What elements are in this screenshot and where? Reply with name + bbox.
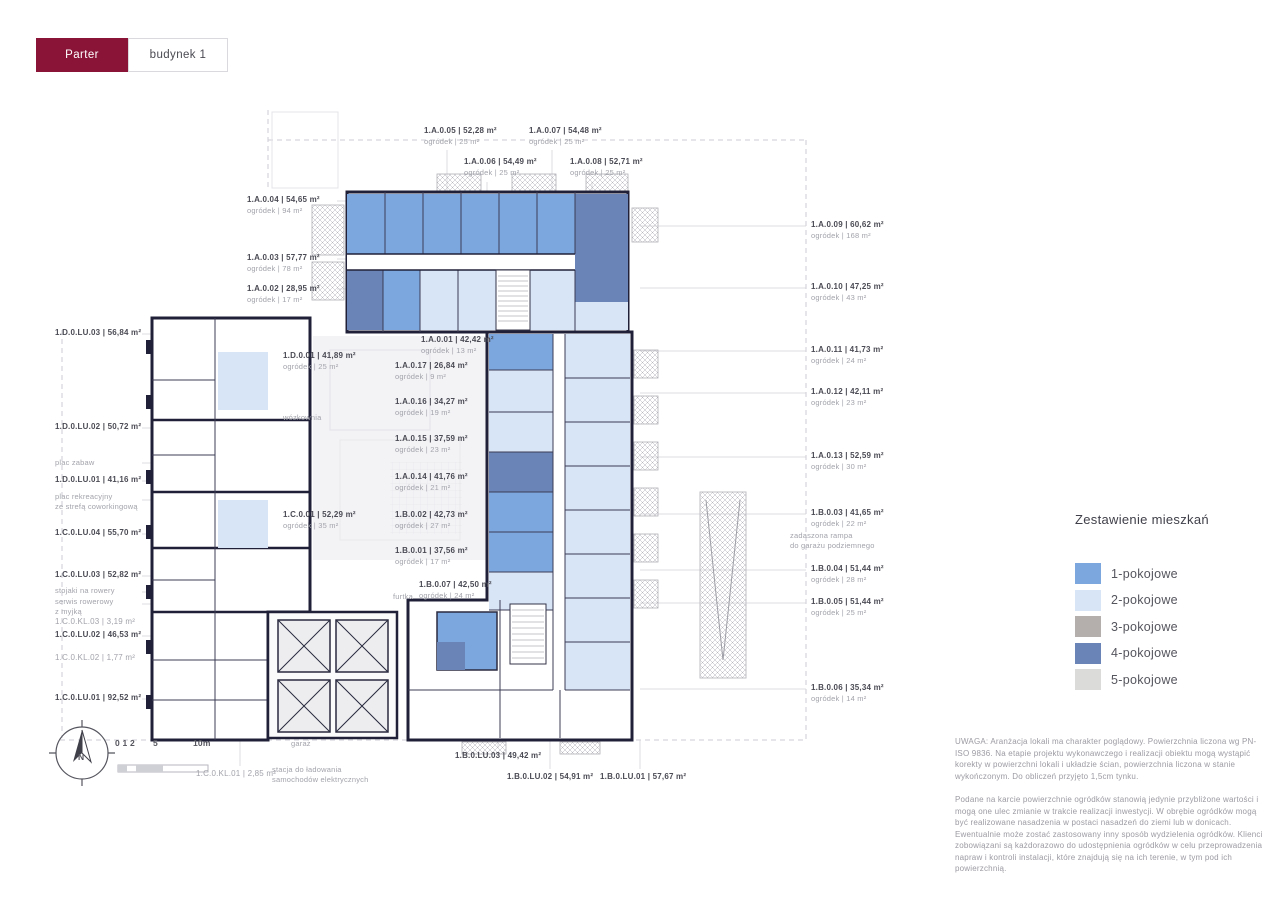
unit-label: 1.B.0.05 | 51,44 m²ogródek | 25 m² <box>811 596 884 618</box>
legend-item: 3-pokojowe <box>1075 616 1255 637</box>
apartment-legend: Zestawienie mieszkań 1-pokojowe2-pokojow… <box>1075 512 1255 696</box>
legend-color-swatch <box>1075 643 1101 664</box>
unit-label: 1.C.0.KL.02 | 1,77 m² <box>55 652 135 663</box>
legend-item: 2-pokojowe <box>1075 590 1255 611</box>
legend-color-swatch <box>1075 669 1101 690</box>
legend-title: Zestawienie mieszkań <box>1075 512 1255 527</box>
legend-item-label: 4-pokojowe <box>1111 646 1178 660</box>
unit-label: 1.A.0.13 | 52,59 m²ogródek | 30 m² <box>811 450 884 472</box>
unit-label: 1.A.0.10 | 47,25 m²ogródek | 43 m² <box>811 281 884 303</box>
unit-label: 1.C.0.LU.01 | 92,52 m² <box>55 692 141 703</box>
unit-label: 1.C.0.01 | 52,29 m²ogródek | 35 m² <box>283 509 356 531</box>
unit-label: 1.C.0.KL.03 | 3,19 m² <box>55 616 135 627</box>
legend-item-label: 2-pokojowe <box>1111 593 1178 607</box>
unit-label: 1.A.0.12 | 42,11 m²ogródek | 23 m² <box>811 386 883 408</box>
unit-label: 1.A.0.02 | 28,95 m²ogródek | 17 m² <box>247 283 320 305</box>
legend-items: 1-pokojowe2-pokojowe3-pokojowe4-pokojowe… <box>1075 563 1255 690</box>
legend-item: 5-pokojowe <box>1075 669 1255 690</box>
unit-label: 1.B.0.LU.01 | 57,67 m² <box>600 771 686 782</box>
legend-color-swatch <box>1075 590 1101 611</box>
tab-parter[interactable]: Parter <box>36 38 128 72</box>
unit-label: 1.A.0.07 | 54,48 m²ogródek | 25 m² <box>529 125 602 147</box>
plan-text-label: 5 <box>153 738 158 748</box>
legend-item: 1-pokojowe <box>1075 563 1255 584</box>
legend-item-label: 3-pokojowe <box>1111 620 1178 634</box>
unit-label: 1.D.0.01 | 41,89 m²ogródek | 25 m² <box>283 350 356 372</box>
legend-item: 4-pokojowe <box>1075 643 1255 664</box>
unit-label: 1.A.0.11 | 41,73 m²ogródek | 24 m² <box>811 344 883 366</box>
plan-text-label: 10m <box>193 738 211 748</box>
plan-text-label: wózkownia <box>283 413 321 423</box>
unit-label: 1.D.0.LU.03 | 56,84 m² <box>55 327 141 338</box>
unit-label: 1.A.0.08 | 52,71 m²ogródek | 25 m² <box>570 156 643 178</box>
unit-label: 1.A.0.17 | 26,84 m²ogródek | 9 m² <box>395 360 468 382</box>
tab-budynek-1[interactable]: budynek 1 <box>128 38 228 72</box>
unit-label: 1.C.0.LU.04 | 55,70 m² <box>55 527 141 538</box>
plan-text-label: stojaki na rowery <box>55 586 115 596</box>
unit-label: 1.A.0.06 | 54,49 m²ogródek | 25 m² <box>464 156 537 178</box>
plan-text-label: plac zabaw <box>55 458 95 468</box>
unit-label: 1.B.0.04 | 51,44 m²ogródek | 28 m² <box>811 563 884 585</box>
unit-label: 1.A.0.03 | 57,77 m²ogródek | 78 m² <box>247 252 320 274</box>
unit-label: 1.A.0.16 | 34,27 m²ogródek | 19 m² <box>395 396 468 418</box>
unit-label: 1.A.0.14 | 41,76 m²ogródek | 21 m² <box>395 471 468 493</box>
plan-text-label: zadaszona rampa do garażu podziemnego <box>790 531 875 551</box>
unit-label: 1.B.0.02 | 42,73 m²ogródek | 27 m² <box>395 509 468 531</box>
unit-label: 1.C.0.LU.03 | 52,82 m² <box>55 569 141 580</box>
plan-text-label: garaż <box>291 739 311 749</box>
unit-label: 1.B.0.LU.03 | 49,42 m² <box>455 750 541 761</box>
legend-item-label: 1-pokojowe <box>1111 567 1178 581</box>
unit-label: 1.D.0.LU.02 | 50,72 m² <box>55 421 141 432</box>
legend-color-swatch <box>1075 563 1101 584</box>
unit-label: 1.A.0.01 | 42,42 m²ogródek | 13 m² <box>421 334 494 356</box>
plan-text-label: stacja do ładowania samochodów elektrycz… <box>272 765 369 785</box>
legend-item-label: 5-pokojowe <box>1111 673 1178 687</box>
legend-color-swatch <box>1075 616 1101 637</box>
note-area-disclaimer: UWAGA: Aranżacja lokali ma charakter pog… <box>955 736 1269 782</box>
unit-label: 1.C.0.KL.01 | 2,85 m² <box>196 768 276 779</box>
plan-text-label: N <box>78 752 84 762</box>
unit-label: 1.A.0.09 | 60,62 m²ogródek | 168 m² <box>811 219 884 241</box>
unit-label: 1.A.0.04 | 54,65 m²ogródek | 94 m² <box>247 194 320 216</box>
unit-label: 1.A.0.15 | 37,59 m²ogródek | 23 m² <box>395 433 468 455</box>
floor-tabs: Parter budynek 1 <box>36 38 228 72</box>
plan-text-label: serwis rowerowy z myjką <box>55 597 113 617</box>
unit-label: 1.A.0.05 | 52,28 m²ogródek | 25 m² <box>424 125 497 147</box>
unit-label: 1.B.0.01 | 37,56 m²ogródek | 17 m² <box>395 545 468 567</box>
unit-label: 1.D.0.LU.01 | 41,16 m² <box>55 474 141 485</box>
plan-text-label: plac rekreacyjny ze strefą coworkingową <box>55 492 138 512</box>
plan-text-label: 0 1 2 <box>115 738 135 748</box>
unit-label: 1.C.0.LU.02 | 46,53 m² <box>55 629 141 640</box>
unit-label: 1.B.0.06 | 35,34 m²ogródek | 14 m² <box>811 682 884 704</box>
unit-label: 1.B.0.LU.02 | 54,91 m² <box>507 771 593 782</box>
plan-text-label: furtka <box>393 592 413 602</box>
unit-label: 1.B.0.07 | 42,50 m²ogródek | 24 m² <box>419 579 492 601</box>
note-garden-disclaimer: Podane na karcie powierzchnie ogródków s… <box>955 794 1269 875</box>
unit-label: 1.B.0.03 | 41,65 m²ogródek | 22 m² <box>811 507 884 529</box>
disclaimer-notes: UWAGA: Aranżacja lokali ma charakter pog… <box>955 736 1269 887</box>
